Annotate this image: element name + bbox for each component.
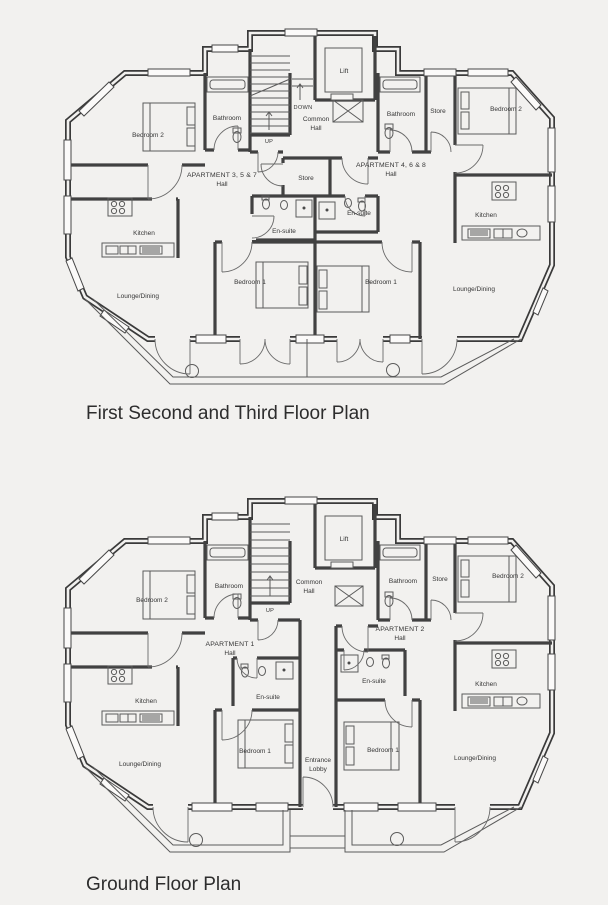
label-kitchen-left: Kitchen — [135, 698, 157, 705]
ground-floor-plan: Bedroom 2 Bathroom UP Common Hall Lift B… — [64, 497, 555, 852]
floor-plans-drawing: Bedroom 2 Bathroom DOWN UP Common Hall L… — [0, 0, 608, 905]
kitchen-appliances — [102, 666, 174, 725]
label-apartment-right-hall: Hall — [385, 171, 397, 178]
label-apartment-2: APARTMENT 2 — [375, 626, 424, 633]
label-apartment-right: APARTMENT 4, 6 & 8 — [356, 162, 426, 169]
first-second-third-floor-plan: Bedroom 2 Bathroom DOWN UP Common Hall L… — [64, 29, 555, 384]
kitchen-appliances — [462, 650, 540, 708]
label-apartment-1: APARTMENT 1 — [205, 641, 254, 648]
label-bathroom-right: Bathroom — [389, 578, 417, 585]
label-apartment-left: APARTMENT 3, 5 & 7 — [187, 172, 257, 179]
label-lounge-right: Lounge/Dining — [454, 755, 496, 762]
label-bedroom2-right: Bedroom 2 — [490, 106, 522, 113]
label-bedroom1-right: Bedroom 1 — [367, 747, 399, 754]
label-lift: Lift — [340, 68, 349, 75]
label-lounge-left: Lounge/Dining — [117, 293, 159, 300]
bed — [143, 571, 195, 619]
label-common-hall: Hall — [310, 125, 322, 132]
label-apartment-2-hall: Hall — [394, 635, 406, 642]
balcony-column — [186, 365, 199, 378]
label-ensuite-left: En-suite — [272, 228, 296, 235]
label-store-right: Store — [430, 108, 446, 115]
label-up: UP — [265, 139, 273, 145]
kitchen-appliances — [102, 198, 174, 257]
label-store-right: Store — [432, 576, 448, 583]
ground-plan-title: Ground Floor Plan — [86, 874, 241, 895]
staircase — [250, 524, 290, 596]
label-bedroom2-left: Bedroom 2 — [132, 132, 164, 139]
label-kitchen-right: Kitchen — [475, 212, 497, 219]
scanned-floor-plan-document: Bedroom 2 Bathroom DOWN UP Common Hall L… — [0, 0, 608, 905]
label-common-hall: Common — [303, 116, 330, 123]
label-ensuite-right: En-suite — [347, 210, 371, 217]
label-lounge-right: Lounge/Dining — [453, 286, 495, 293]
entrance-walkway — [290, 836, 345, 848]
terrace-column — [391, 833, 404, 846]
up-arrow — [267, 576, 273, 596]
label-kitchen-left: Kitchen — [133, 230, 155, 237]
label-apartment-1-hall: Hall — [224, 650, 236, 657]
label-ensuite-right: En-suite — [362, 678, 386, 685]
balcony-column — [387, 364, 400, 377]
label-up: UP — [266, 608, 274, 614]
bed — [317, 266, 369, 312]
label-bedroom1-left: Bedroom 1 — [239, 748, 271, 755]
label-entrance-lobby: Lobby — [309, 766, 327, 773]
label-common-hall: Hall — [303, 588, 315, 595]
label-bedroom2-right: Bedroom 2 — [492, 573, 524, 580]
label-bedroom1-right: Bedroom 1 — [365, 279, 397, 286]
bed — [143, 103, 195, 151]
upper-pl an-title: First Second and Third Floor Plan — [86, 403, 370, 424]
down-arrow — [297, 84, 303, 100]
label-bedroom1-left: Bedroom 1 — [234, 279, 266, 286]
label-entrance-lobby: Entrance — [305, 757, 331, 764]
label-kitchen-right: Kitchen — [475, 681, 497, 688]
label-store-center: Store — [298, 175, 314, 182]
label-lounge-left: Lounge/Dining — [119, 761, 161, 768]
door-openings — [148, 613, 490, 812]
label-lift: Lift — [340, 536, 349, 543]
label-bathroom-right: Bathroom — [387, 111, 415, 118]
label-bathroom-left: Bathroom — [215, 583, 243, 590]
label-common-hall: Common — [296, 579, 323, 586]
label-bedroom2-left: Bedroom 2 — [136, 597, 168, 604]
label-apartment-left-hall: Hall — [216, 181, 228, 188]
bed — [344, 722, 399, 770]
floor-mat — [335, 586, 363, 606]
label-ensuite-left: En-suite — [256, 694, 280, 701]
room-labels: Bedroom 2 Bathroom UP Common Hall Lift B… — [119, 536, 524, 773]
kitchen-appliances — [462, 182, 540, 240]
up-arrow — [266, 112, 272, 130]
label-down: DOWN — [294, 105, 313, 111]
label-bathroom-left: Bathroom — [213, 115, 241, 122]
floor-mat — [333, 100, 363, 122]
